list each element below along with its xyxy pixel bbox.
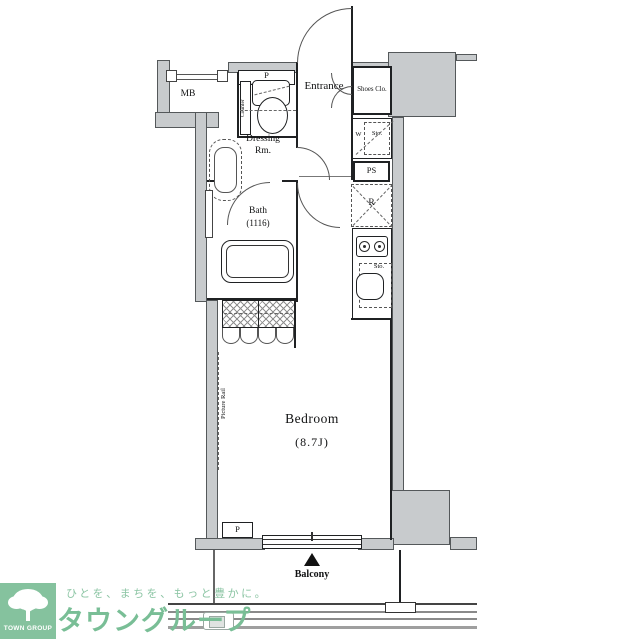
shoes-closet-label: Shoes Clo. [352, 86, 392, 93]
stove-burner-left [359, 241, 370, 252]
wall-bottom-right [358, 538, 394, 550]
entrance-label: Entrance [296, 81, 352, 93]
pipe-space-label: PS [353, 166, 390, 175]
wall-ledge-top-right [456, 54, 477, 61]
balcony-label: Balcony [281, 570, 343, 581]
wall-bedroom-right-face [390, 318, 392, 540]
picture-rail-dashed [218, 352, 219, 470]
bath-shelf [205, 190, 213, 238]
bath-size-label: (1116) [227, 219, 289, 228]
closet-fold-door-2 [240, 328, 258, 344]
kitchen-sink [356, 273, 384, 300]
balcony-direction-triangle [304, 553, 320, 566]
meter-box-label: MB [160, 90, 216, 100]
washbasin-bowl [214, 147, 237, 193]
pipe-box-top-label: P [238, 71, 295, 80]
closet-left-panel [222, 300, 259, 328]
bedroom-door-arc [297, 183, 340, 228]
wall-entrance-left-lower [296, 180, 298, 302]
wall-mb-bottom [155, 112, 219, 128]
footer-brand: タウングループ [57, 599, 251, 638]
mb-door-hinge-right [217, 70, 228, 82]
closet-fold-door-3 [258, 328, 276, 344]
pillar-box-bottom-label: P [222, 525, 253, 534]
wall-block-top-right [388, 52, 456, 117]
balcony-window-rail-2 [263, 544, 361, 545]
picture-rail-label: Picture Rail [221, 374, 230, 434]
town-group-logo-text: TOWN GROUP [0, 625, 56, 632]
wall-left-lower [206, 300, 218, 540]
entry-storage-label: Sto. [366, 131, 388, 138]
wall-right [392, 117, 404, 492]
stove-burner-right [374, 241, 385, 252]
wall-block-bottom-right [390, 490, 450, 545]
bath-label: Bath [227, 207, 289, 217]
bedroom-label: Bedroom [262, 412, 362, 426]
wc-dashed-line [240, 110, 296, 111]
town-group-logo: TOWN GROUP [0, 583, 56, 639]
balcony-divider-notch [385, 602, 416, 613]
kitchen-storage-label: Sto. [368, 264, 390, 271]
wall-bottom-left [195, 538, 265, 550]
wall-dressing-bath-right [282, 180, 298, 182]
closet-fold-door-4 [276, 328, 294, 344]
entrance-door-arc [297, 8, 352, 63]
dressing-room-label-1: Dressing [229, 135, 297, 145]
dressing-door-arc [297, 147, 330, 180]
closet-hanger-line [224, 313, 293, 314]
mb-door-hinge-left [166, 70, 177, 82]
toilet-bowl [257, 97, 288, 134]
balcony-window-center-tick [311, 532, 313, 541]
washer-label: W [353, 132, 364, 139]
bedroom-size-label: (8.7J) [262, 436, 362, 449]
wall-strip-bottom-right [450, 537, 477, 550]
closet-right-panel [258, 300, 295, 328]
bathtub-inner [226, 245, 289, 278]
closet-fold-door-1 [222, 328, 240, 344]
refrigerator-label: R [351, 199, 392, 209]
floor-plan: P Counter Sink Entrance Shoes Clo. W Sto… [0, 0, 640, 639]
